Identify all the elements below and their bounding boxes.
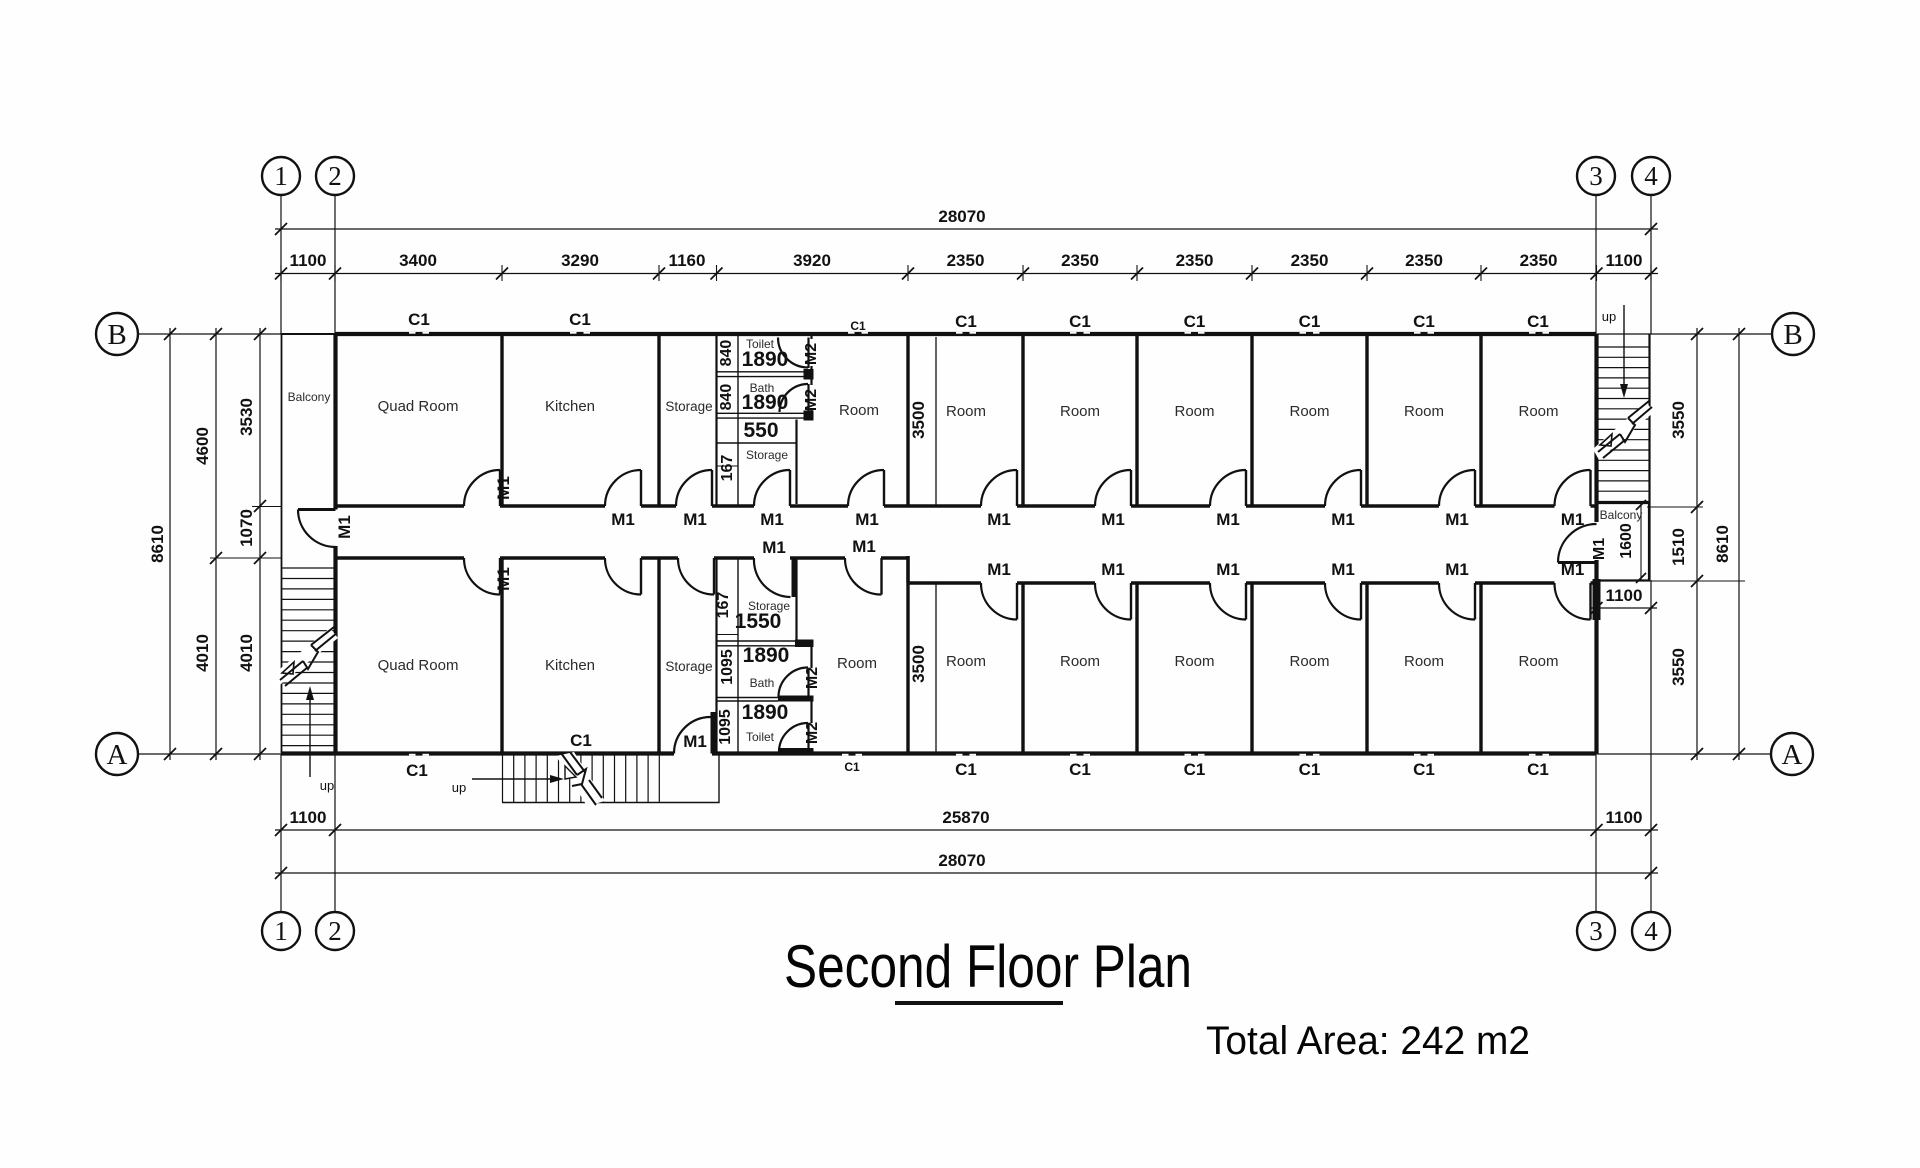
svg-text:Toilet: Toilet: [746, 730, 775, 744]
svg-text:up: up: [320, 778, 334, 793]
svg-text:C1: C1: [1184, 760, 1206, 779]
svg-text:Bath: Bath: [750, 676, 775, 690]
svg-text:28070: 28070: [938, 851, 985, 870]
svg-text:3530: 3530: [237, 398, 256, 436]
svg-text:up: up: [452, 780, 466, 795]
svg-text:1100: 1100: [290, 808, 327, 827]
svg-text:4600: 4600: [193, 427, 212, 465]
svg-text:M1: M1: [1445, 510, 1469, 529]
svg-text:Storage: Storage: [665, 399, 712, 414]
svg-text:1: 1: [274, 916, 288, 946]
svg-text:8610: 8610: [148, 525, 167, 563]
svg-text:M1: M1: [987, 510, 1011, 529]
svg-text:25870: 25870: [942, 808, 989, 827]
svg-text:up: up: [1602, 309, 1616, 324]
svg-text:C1: C1: [955, 760, 977, 779]
svg-text:28070: 28070: [938, 207, 985, 226]
svg-text:M2: M2: [803, 389, 820, 411]
svg-text:Quad Room: Quad Room: [378, 398, 459, 415]
svg-text:B: B: [107, 319, 126, 351]
svg-text:M1: M1: [762, 538, 786, 557]
svg-text:C1: C1: [1413, 760, 1435, 779]
svg-text:C1: C1: [1069, 312, 1091, 331]
svg-text:M1: M1: [494, 567, 513, 591]
svg-text:C1: C1: [408, 310, 430, 329]
svg-text:167: 167: [715, 592, 732, 619]
svg-text:2350: 2350: [947, 251, 985, 270]
svg-text:Balcony: Balcony: [288, 390, 331, 404]
svg-text:2350: 2350: [1520, 251, 1558, 270]
svg-text:1160: 1160: [669, 251, 706, 270]
svg-text:Room: Room: [1289, 403, 1329, 420]
svg-text:C1: C1: [844, 760, 860, 774]
svg-text:C1: C1: [1299, 312, 1321, 331]
svg-text:M1: M1: [760, 510, 784, 529]
svg-text:1070: 1070: [237, 509, 256, 547]
svg-text:1095: 1095: [719, 649, 736, 685]
svg-text:M2: M2: [804, 667, 821, 689]
svg-text:840: 840: [718, 340, 735, 367]
svg-text:8610: 8610: [1713, 525, 1732, 563]
svg-text:C1: C1: [1299, 760, 1321, 779]
svg-text:3920: 3920: [793, 251, 831, 270]
svg-text:Room: Room: [1518, 653, 1558, 670]
svg-text:4: 4: [1644, 916, 1658, 946]
svg-text:C1: C1: [1069, 760, 1091, 779]
svg-text:2350: 2350: [1061, 251, 1099, 270]
svg-text:M1: M1: [1216, 560, 1240, 579]
svg-text:Room: Room: [1060, 653, 1100, 670]
svg-text:Room: Room: [1404, 653, 1444, 670]
svg-text:3290: 3290: [561, 251, 599, 270]
svg-text:Kitchen: Kitchen: [545, 657, 595, 674]
svg-text:C1: C1: [850, 319, 866, 333]
svg-text:2: 2: [328, 916, 342, 946]
svg-text:1100: 1100: [290, 251, 327, 270]
svg-text:1600: 1600: [1618, 523, 1635, 559]
svg-text:Room: Room: [946, 403, 986, 420]
svg-text:167: 167: [719, 455, 736, 482]
svg-text:1095: 1095: [717, 709, 734, 745]
svg-text:Balcony: Balcony: [1600, 508, 1643, 522]
svg-text:Room: Room: [1174, 653, 1214, 670]
svg-text:2350: 2350: [1176, 251, 1214, 270]
svg-text:C1: C1: [1527, 760, 1549, 779]
svg-text:2: 2: [328, 161, 342, 191]
svg-text:3500: 3500: [909, 401, 928, 439]
svg-text:4010: 4010: [237, 634, 256, 672]
svg-text:A: A: [1782, 739, 1803, 771]
svg-text:1: 1: [274, 161, 288, 191]
svg-text:4: 4: [1644, 161, 1658, 191]
svg-text:1100: 1100: [1606, 808, 1643, 827]
svg-text:Room: Room: [837, 655, 877, 672]
svg-text:Kitchen: Kitchen: [545, 398, 595, 415]
svg-text:C1: C1: [1413, 312, 1435, 331]
svg-text:M1: M1: [1101, 510, 1125, 529]
svg-text:Room: Room: [1404, 403, 1444, 420]
svg-text:Room: Room: [1289, 653, 1329, 670]
svg-text:Room: Room: [1518, 403, 1558, 420]
svg-text:840: 840: [718, 384, 735, 411]
svg-text:Storage: Storage: [746, 448, 788, 462]
svg-text:Total Area: 242 m2: Total Area: 242 m2: [1206, 1019, 1530, 1063]
svg-text:3550: 3550: [1669, 648, 1688, 686]
svg-text:C1: C1: [569, 310, 591, 329]
svg-text:M1: M1: [335, 515, 354, 539]
svg-text:M1: M1: [683, 732, 707, 751]
svg-text:C1: C1: [1527, 312, 1549, 331]
svg-text:2350: 2350: [1291, 251, 1329, 270]
svg-text:C1: C1: [570, 731, 592, 750]
svg-text:M1: M1: [987, 560, 1011, 579]
svg-text:1890: 1890: [743, 644, 790, 667]
svg-text:C1: C1: [1184, 312, 1206, 331]
svg-text:M1: M1: [1331, 560, 1355, 579]
svg-text:1100: 1100: [1606, 586, 1643, 605]
svg-text:B: B: [1783, 319, 1802, 351]
svg-text:550: 550: [743, 419, 778, 442]
svg-text:1890: 1890: [742, 701, 789, 724]
svg-text:M1: M1: [1101, 560, 1125, 579]
svg-text:4010: 4010: [193, 634, 212, 672]
svg-text:3400: 3400: [399, 251, 437, 270]
svg-text:Room: Room: [839, 402, 879, 419]
svg-text:A: A: [107, 739, 128, 771]
svg-text:M1: M1: [1331, 510, 1355, 529]
svg-text:C1: C1: [955, 312, 977, 331]
svg-text:M2: M2: [803, 343, 820, 365]
svg-text:M1: M1: [1445, 560, 1469, 579]
svg-text:3: 3: [1589, 916, 1603, 946]
svg-text:3500: 3500: [909, 645, 928, 683]
svg-text:3550: 3550: [1669, 401, 1688, 439]
svg-text:M1: M1: [611, 510, 635, 529]
svg-text:Room: Room: [1174, 403, 1214, 420]
svg-text:Quad Room: Quad Room: [378, 657, 459, 674]
svg-text:C1: C1: [406, 761, 428, 780]
svg-text:Storage: Storage: [665, 659, 712, 674]
svg-text:M1: M1: [1591, 538, 1608, 560]
svg-text:Second Floor Plan: Second Floor Plan: [784, 933, 1192, 1000]
svg-text:Room: Room: [1060, 403, 1100, 420]
svg-text:1550: 1550: [735, 610, 782, 633]
svg-text:Room: Room: [946, 653, 986, 670]
svg-text:M1: M1: [1216, 510, 1240, 529]
svg-text:M1: M1: [683, 510, 707, 529]
svg-text:M2: M2: [804, 722, 821, 744]
svg-text:M1: M1: [852, 537, 876, 556]
svg-text:2350: 2350: [1405, 251, 1443, 270]
svg-text:M1: M1: [494, 476, 513, 500]
svg-text:1510: 1510: [1669, 528, 1688, 566]
svg-text:1100: 1100: [1606, 251, 1643, 270]
svg-text:3: 3: [1589, 161, 1603, 191]
svg-text:M1: M1: [855, 510, 879, 529]
